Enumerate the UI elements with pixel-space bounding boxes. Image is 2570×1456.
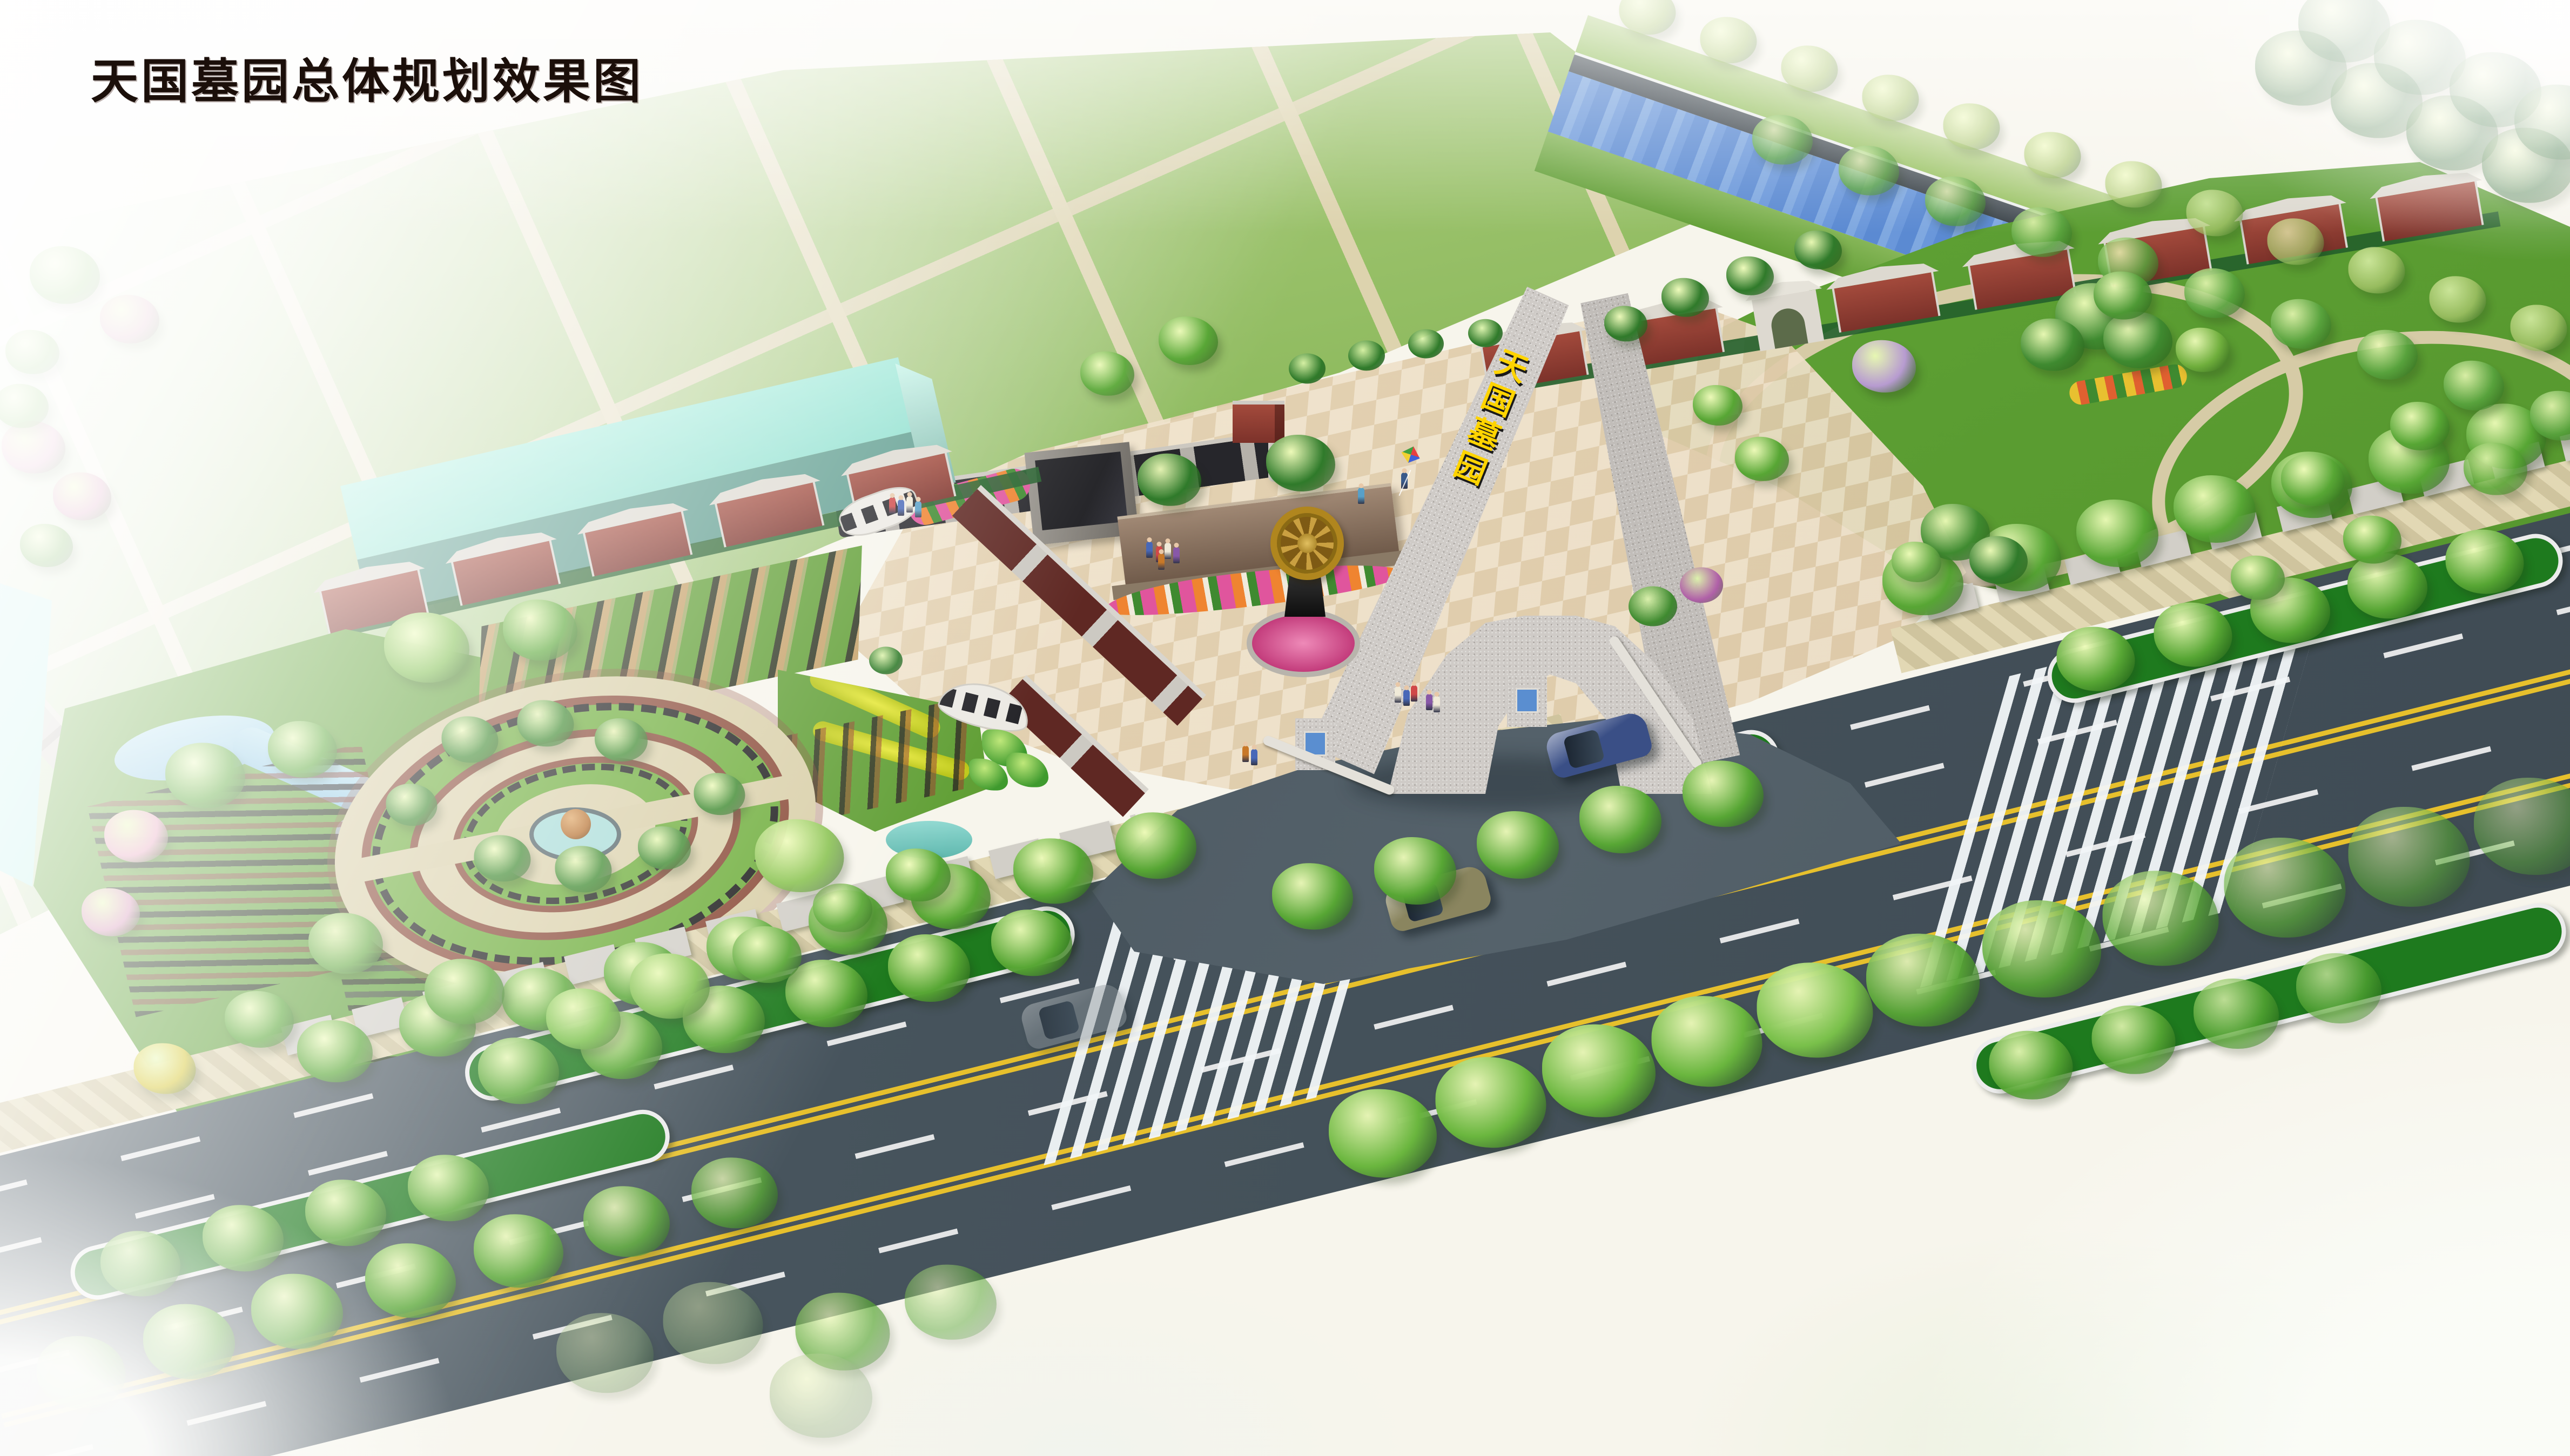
page-title: 天国墓园总体规划效果图: [91, 43, 643, 112]
kite-layer: [0, 0, 2570, 1456]
kite: [1399, 443, 1423, 466]
cemetery-master-plan-rendering: 天国墓园 天国墓园总体规划效果图: [0, 0, 2570, 1456]
